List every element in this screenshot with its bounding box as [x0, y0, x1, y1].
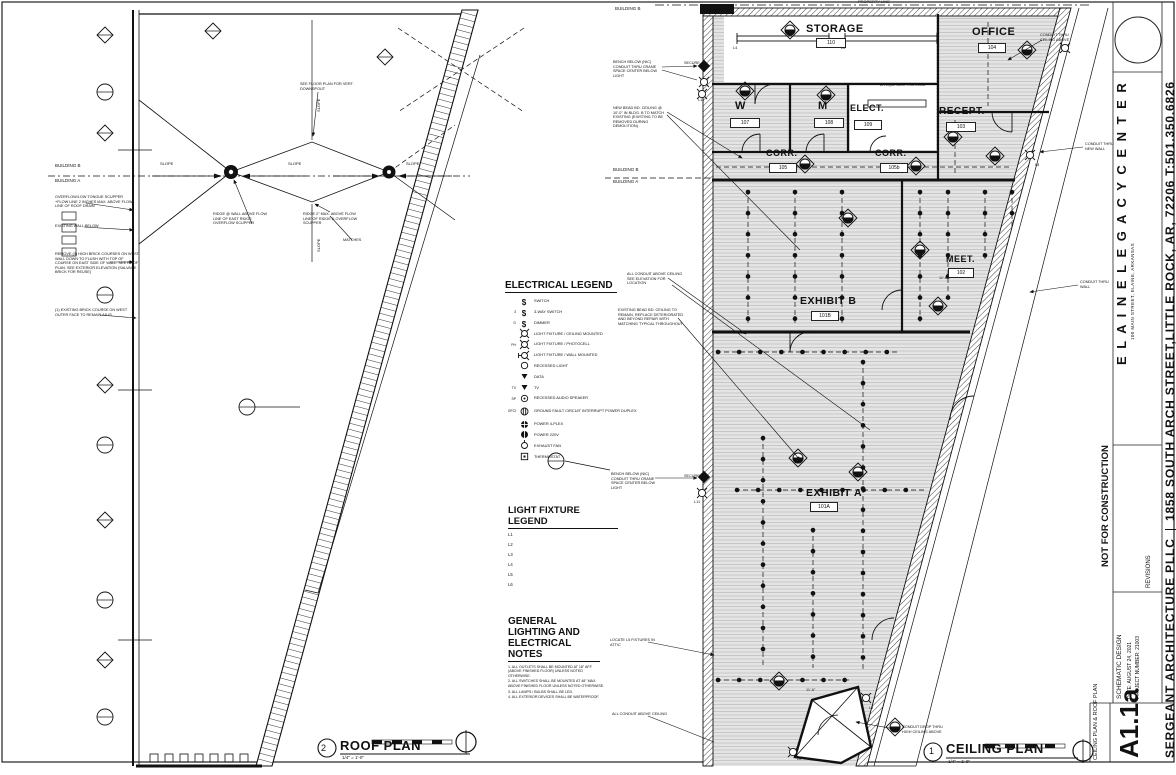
room-label-corr1: CORR.	[766, 149, 798, 159]
roof-note-downspout: SEE FLOOR PLAN FOR VERT. DOWNSPOUT	[300, 82, 362, 91]
general-note: 4. ALL EXTERIOR DEVICES SHALL BE WATERPR…	[508, 695, 606, 699]
roof-plan-number: 2	[321, 744, 326, 754]
ceiling-plan-linework	[605, 4, 1108, 766]
general-note: 1. ALL OUTLETS SHALL BE MOUNTED AT 18" A…	[508, 665, 606, 678]
status-stamp: NOT FOR CONSTRUCTION	[1100, 445, 1111, 567]
room-label-office: OFFICE	[972, 26, 1015, 38]
general-notes: GENERAL LIGHTING AND ELECTRICAL NOTES 1.…	[508, 616, 606, 701]
room-number-exhibit-b: 101B	[811, 311, 839, 321]
ceiling-tag-secure: SECURE	[684, 61, 700, 65]
electrical-legend: ELECTRICAL LEGEND $ SWITCH 3 $ 3-WAY SWI…	[505, 280, 655, 462]
light-fixture-legend: LIGHT FIXTURE LEGEND L1 L2 L3 L4 L5 L6	[508, 505, 628, 592]
architectural-sheet: BUILDING B BUILDING A OVERFLOW/LOW TONGU…	[0, 0, 1176, 775]
ceiling-tag-l11: L11	[698, 98, 704, 102]
ceiling-tag-l11-2: L11	[694, 500, 700, 504]
ceiling-note-conduit-wall: CONDUIT THRU WALL	[1080, 280, 1118, 289]
thermostat-icon	[517, 448, 531, 466]
roof-slope-label: SLOPE	[406, 162, 419, 166]
electrical-legend-title: ELECTRICAL LEGEND	[505, 280, 617, 293]
roof-slope-label-vertical: SLOPE	[316, 239, 321, 252]
roof-note-existing-wall: EXISTING WALL BELOW	[55, 224, 99, 228]
roof-note-remove-brick: REMOVE (3) HIGH BRICK COURSES ON WEST WA…	[55, 252, 140, 275]
roof-note-existing-course: (1) EXISTING BRICK COURSE ON WEST OUTER …	[55, 308, 135, 317]
ceiling-height-tag-2: 11'-6"	[806, 688, 815, 692]
roof-building-a-label: BUILDING A	[55, 179, 80, 184]
ceiling-note-conduit-ceiling: CONDUIT THRU CEILING ABOVE	[1040, 33, 1082, 42]
room-number-corr2: 105b	[880, 163, 908, 173]
ceiling-plan-scale: 1/4" = 1'-0"	[948, 760, 970, 765]
roof-plan-title: ROOF PLAN	[340, 739, 421, 753]
ceiling-note-av: A/V EQUIPMENT THIS ROOM	[880, 84, 926, 88]
room-label-exhibit-b: EXHIBIT B	[800, 296, 856, 308]
general-notes-title-1: GENERAL LIGHTING AND	[508, 616, 606, 638]
room-label-w: W	[735, 100, 746, 112]
fixture-type-l2: L2	[508, 542, 628, 552]
general-note: 2. ALL SWITCHES SHALL BE MOUNTED AT 48" …	[508, 679, 606, 688]
general-notes-title-2: ELECTRICAL NOTES	[508, 638, 600, 662]
room-label-m: M	[818, 100, 828, 112]
ceiling-tag-l4: L4	[733, 46, 737, 50]
revisions-label: REVISIONS	[1146, 555, 1152, 588]
fixture-type-l6: L6	[508, 582, 628, 592]
ceiling-note-new-ceiling: NEW BEAD BD. CEILING @ 10'-0" IN BLDG. B…	[613, 106, 671, 129]
property-line-label: PROPERTY LINE	[858, 0, 890, 4]
room-label-storage: STORAGE	[806, 23, 864, 35]
room-number-elect: 109	[854, 120, 882, 130]
ceiling-tag-l8-2: L8	[869, 706, 873, 710]
ceiling-height-tag: 11'-6"	[939, 276, 948, 280]
roof-note-overflow-scupper: OVERFLOW/LOW TONGUE SCUPPER +FLOW LINE 2…	[55, 195, 135, 209]
ceiling-tag-l8-3: L8	[797, 757, 801, 761]
fixture-type-l1: L1	[508, 532, 628, 542]
room-number-w: 107	[730, 118, 760, 128]
ceiling-building-a-label: BUILDING A	[613, 180, 638, 185]
sheet-title: CEILING PLAN & ROOF PLAN	[1093, 684, 1099, 760]
roof-slope-label-vertical: SLOPE	[316, 99, 321, 112]
roof-plan-scale: 1/4" = 1'-0"	[342, 756, 364, 761]
room-number-corr1: 105	[769, 163, 797, 173]
ceiling-note-conduit-drop: CONDUIT DROP THRU HIGH CEILING ABOVE	[902, 725, 948, 734]
ceiling-building-b-top-label: BUILDING B	[615, 7, 641, 12]
room-number-meet: 102	[948, 268, 974, 278]
roof-note-ridge-wall: RIDGE @ WALL ABOVE FLOW LINE OF EAST RID…	[213, 212, 271, 226]
fixture-type-l3: L3	[508, 552, 628, 562]
room-label-recept: RECEPT.	[939, 106, 985, 117]
roof-note-matches: MATCHES	[343, 238, 361, 242]
roof-slope-label: SLOPE	[288, 162, 301, 166]
room-number-storage: 110	[816, 38, 846, 48]
ceiling-tag-secure-2: SECURE	[684, 474, 700, 478]
sheet-number: A1.1a	[1114, 689, 1145, 758]
roof-building-b-label: BUILDING B	[55, 164, 81, 169]
room-number-recept: 103	[946, 122, 976, 132]
room-label-exhibit-a: EXHIBIT A	[806, 488, 862, 500]
firm-logo-circle	[1115, 17, 1161, 63]
room-label-corr2: CORR.	[875, 149, 907, 159]
room-number-m: 108	[814, 118, 844, 128]
ceiling-note-bench: BENCH BELOW (NIC) CONDUIT THRU CRANE SPA…	[613, 60, 665, 78]
room-label-meet: MEET.	[946, 255, 975, 265]
firm-address: 1858 SOUTH ARCH STREET,LITTLE ROCK, AR, …	[1163, 81, 1176, 521]
room-number-office: 104	[978, 43, 1006, 53]
titleblock-divider	[1165, 529, 1176, 530]
ceiling-plan-title: CEILING PLAN	[946, 742, 1044, 756]
ceiling-note-locate-l5: LOCATE L5 FIXTURES IN ATTIC	[610, 638, 662, 647]
fixture-type-l4: L4	[508, 562, 628, 572]
legend-item-thermostat: THERMOSTAT	[505, 451, 655, 462]
ceiling-tag-l8: L8	[1035, 163, 1039, 167]
roof-slope-label: SLOPE	[160, 162, 173, 166]
room-label-elect: ELECT.	[850, 104, 884, 114]
firm-name-address: SERGEANT ARCHITECTURE PLLC 1858 SOUTH AR…	[1163, 81, 1176, 758]
project-address: 100 MAIN STREET, ELAINE, ARKANSAS	[1130, 243, 1135, 340]
ceiling-building-b-label: BUILDING B	[613, 168, 639, 173]
room-number-exhibit-a: 101A	[810, 502, 838, 512]
project-name: E L A I N E L E G A C Y C E N T E R	[1114, 81, 1129, 365]
ceiling-note-conduit-all: ALL CONDUIT ABOVE CEILING	[612, 712, 667, 716]
ceiling-plan-number: 1	[929, 747, 934, 757]
firm-name: SERGEANT ARCHITECTURE PLLC	[1163, 538, 1176, 758]
general-note: 3. ALL LAMPS / BULBS SHALL BE LED.	[508, 690, 606, 694]
light-fixture-legend-title: LIGHT FIXTURE LEGEND	[508, 505, 618, 529]
roof-note-ridge-max: RIDGE 2" MAX. ABOVE FLOW LINE OF RIDGE &…	[303, 212, 365, 226]
ceiling-note-bench-2: BENCH BELOW (NIC) CONDUIT THRU CRANE SPA…	[611, 472, 663, 490]
fixture-type-l5: L5	[508, 572, 628, 582]
